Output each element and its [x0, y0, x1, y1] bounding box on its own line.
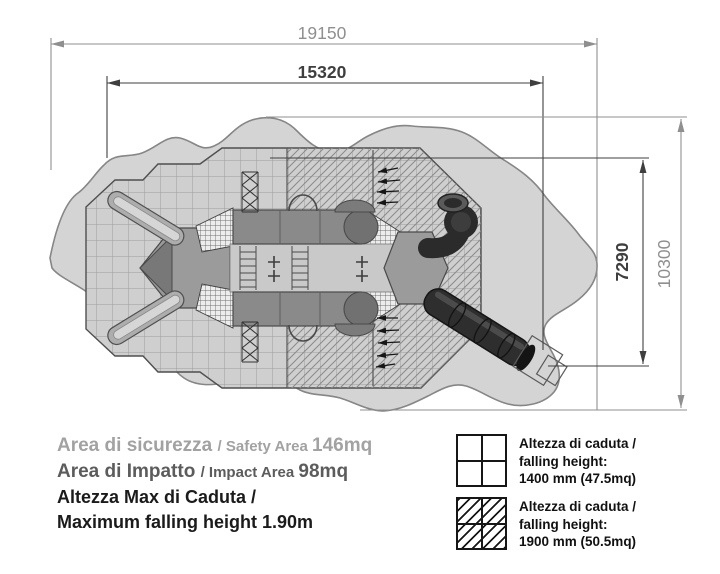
- grid-swatch: [456, 434, 507, 487]
- max-fall-height-line-2: Maximum falling height 1.90m: [57, 510, 372, 535]
- legend-text-1400: Altezza di caduta / falling height: 1400…: [519, 434, 636, 488]
- legend-1400-line-1: Altezza di caduta /: [519, 435, 636, 453]
- deck-top: [233, 210, 361, 244]
- area-summary: Area di sicurezza / Safety Area 146mq Ar…: [57, 434, 372, 534]
- safety-area-line: Area di sicurezza / Safety Area 146mq: [57, 434, 372, 460]
- legend-1900-line-3: 1900 mm (50.5mq): [519, 533, 636, 551]
- max-fall-height-line-1: Altezza Max di Caduta /: [57, 485, 372, 510]
- impact-area-value: 98mq: [298, 461, 348, 482]
- safety-area-label-it: Area di sicurezza: [57, 435, 212, 456]
- deck-top-end-cap: [344, 210, 378, 244]
- legend-item-1400: Altezza di caduta / falling height: 1400…: [456, 434, 636, 488]
- mid-deck: [230, 244, 398, 292]
- plan-sheet: 19150 15320 7290 10300 Area di sicurezza…: [0, 0, 720, 574]
- safety-area-label-en: / Safety Area: [218, 438, 313, 455]
- impact-area-label-it: Area di Impatto: [57, 461, 195, 482]
- deck-bottom-end-cap: [344, 292, 378, 326]
- dim-label-impact-width: 15320: [298, 62, 347, 82]
- legend-text-1900: Altezza di caduta / falling height: 1900…: [519, 497, 636, 551]
- legend-1900-line-1: Altezza di caduta /: [519, 498, 636, 516]
- impact-area-line: Area di Impatto / Impact Area 98mq: [57, 460, 372, 486]
- hatch-swatch-hline: [458, 523, 505, 525]
- deck-bottom: [233, 292, 361, 326]
- dim-label-total-width: 19150: [298, 23, 347, 43]
- grid-swatch-hline: [458, 460, 505, 462]
- dim-label-total-height: 10300: [654, 239, 674, 288]
- legend-1900-line-2: falling height:: [519, 516, 636, 534]
- impact-area-label-en: / Impact Area: [201, 464, 299, 481]
- legend-1400-line-2: falling height:: [519, 453, 636, 471]
- hatch-swatch: [456, 497, 507, 550]
- dim-label-impact-height: 7290: [612, 242, 632, 281]
- legend-1400-line-3: 1400 mm (47.5mq): [519, 470, 636, 488]
- legend-item-1900: Altezza di caduta / falling height: 1900…: [456, 497, 636, 551]
- safety-area-value: 146mq: [312, 435, 372, 456]
